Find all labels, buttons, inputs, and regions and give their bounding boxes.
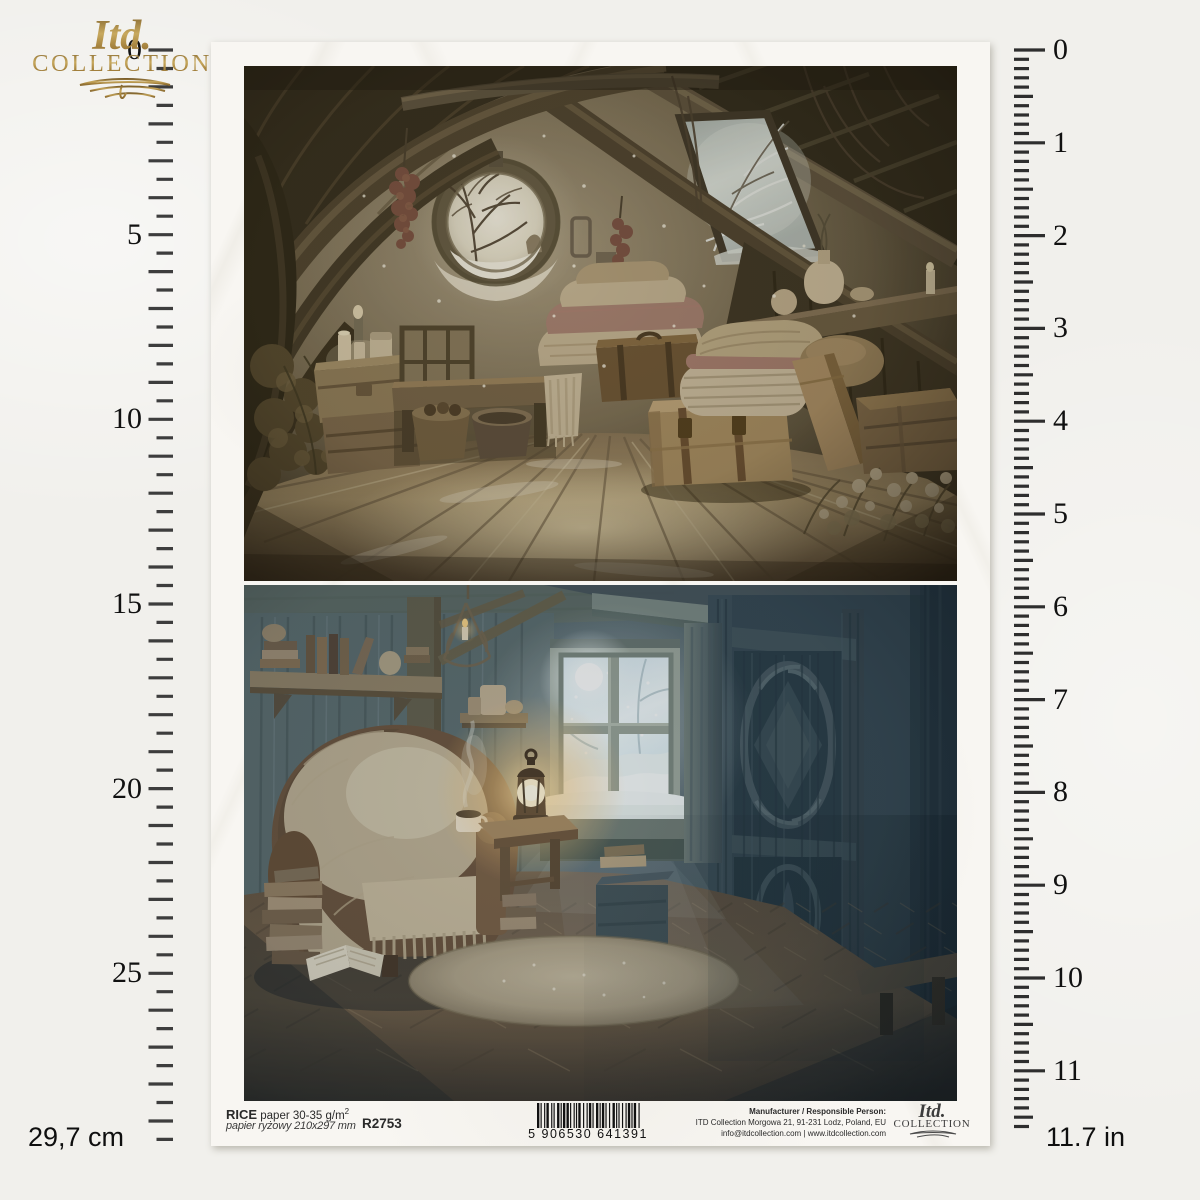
svg-text:COLLECTION: COLLECTION [893,1118,970,1130]
svg-text:COLLECTION: COLLECTION [32,50,212,77]
